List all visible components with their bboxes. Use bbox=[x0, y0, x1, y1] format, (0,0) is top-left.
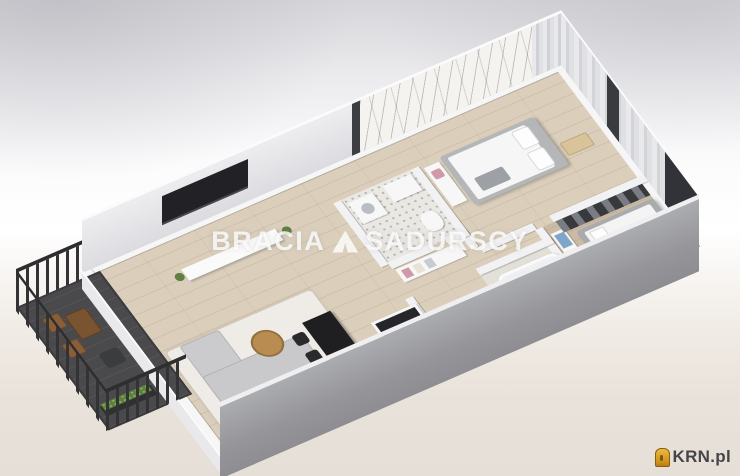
watermark-logo-mark-icon bbox=[332, 231, 358, 253]
krn-padlock-icon bbox=[655, 448, 670, 467]
brand-label: KRN.pl bbox=[673, 447, 731, 467]
watermark-text-left: BRACIA bbox=[211, 226, 325, 257]
door-frame-dark bbox=[352, 100, 360, 155]
watermark-text-right: SADURSCY bbox=[365, 226, 529, 257]
floor-plan-render: BRACIA SADURSCY KRN.pl bbox=[0, 0, 740, 476]
watermark: BRACIA SADURSCY bbox=[211, 226, 529, 257]
brand-badge: KRN.pl bbox=[655, 447, 731, 467]
